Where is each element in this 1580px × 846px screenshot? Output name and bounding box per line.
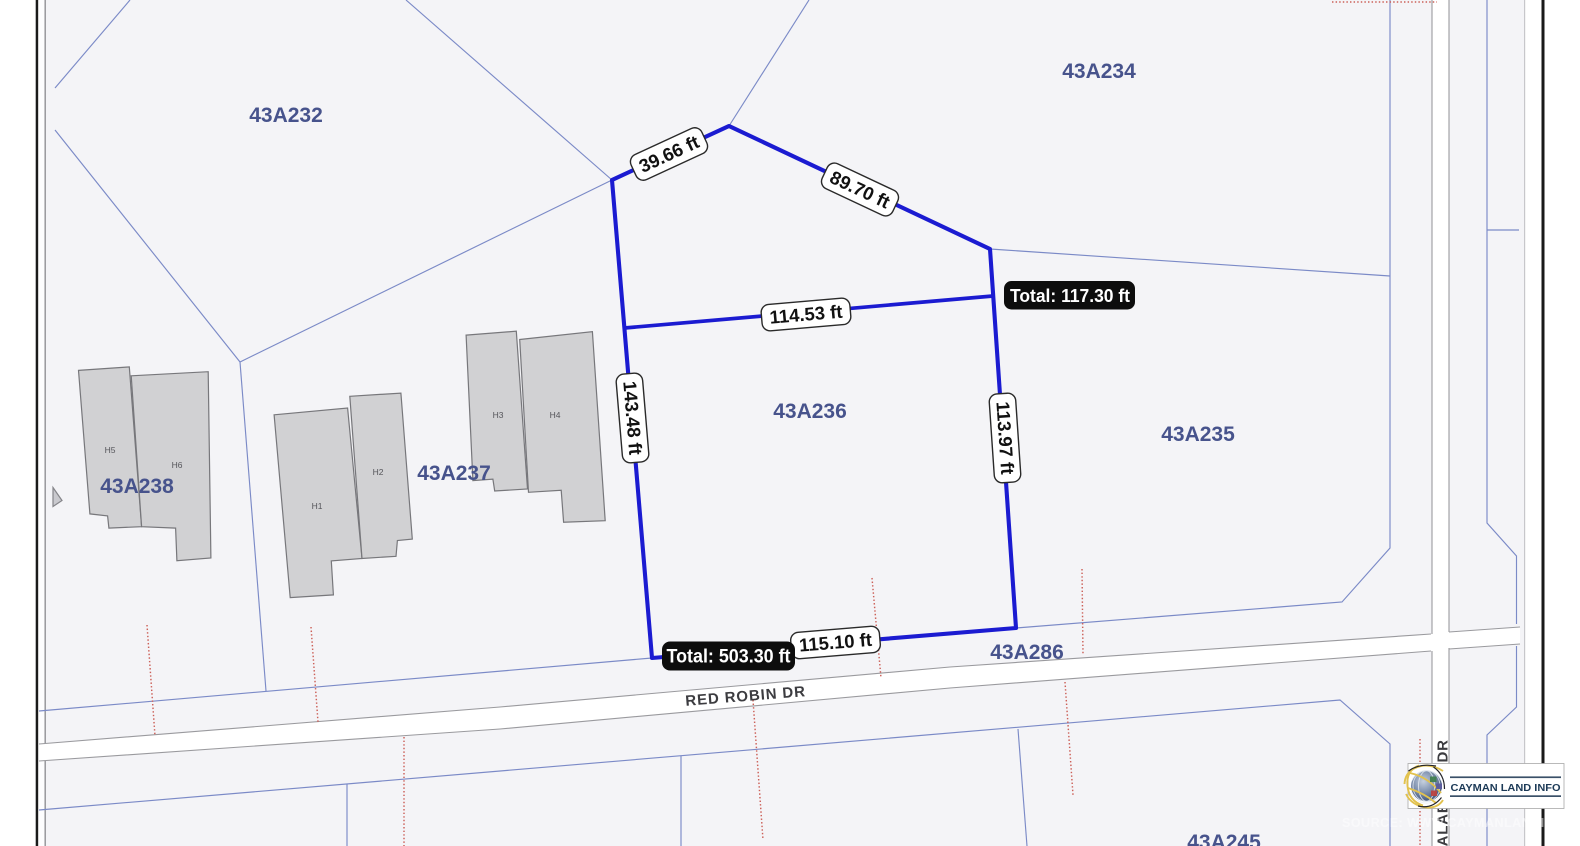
svg-text:H4: H4 <box>550 410 561 420</box>
svg-text:43A232: 43A232 <box>249 104 323 127</box>
svg-text:43A245: 43A245 <box>1187 831 1261 846</box>
svg-text:CAYMAN LAND INFO: CAYMAN LAND INFO <box>1451 782 1561 794</box>
svg-text:H5: H5 <box>105 445 116 455</box>
svg-text:H1: H1 <box>312 501 323 511</box>
svg-text:43A234: 43A234 <box>1062 60 1136 83</box>
svg-text:Total: 117.30 ft: Total: 117.30 ft <box>1010 286 1130 306</box>
svg-text:43A238: 43A238 <box>100 475 174 498</box>
svg-text:Total: 503.30 ft: Total: 503.30 ft <box>667 647 792 668</box>
svg-text:H3: H3 <box>493 410 504 420</box>
svg-text:43A235: 43A235 <box>1161 423 1235 446</box>
svg-text:H6: H6 <box>172 460 183 470</box>
svg-text:H2: H2 <box>373 467 384 477</box>
svg-text:43A236: 43A236 <box>773 400 847 423</box>
svg-text:43A237: 43A237 <box>417 462 491 485</box>
svg-text:SOURCE: WWW.CAYMANLANDINFO.KY: SOURCE: WWW.CAYMANLANDINFO.KY <box>1342 816 1580 830</box>
svg-text:43A286: 43A286 <box>990 641 1064 664</box>
